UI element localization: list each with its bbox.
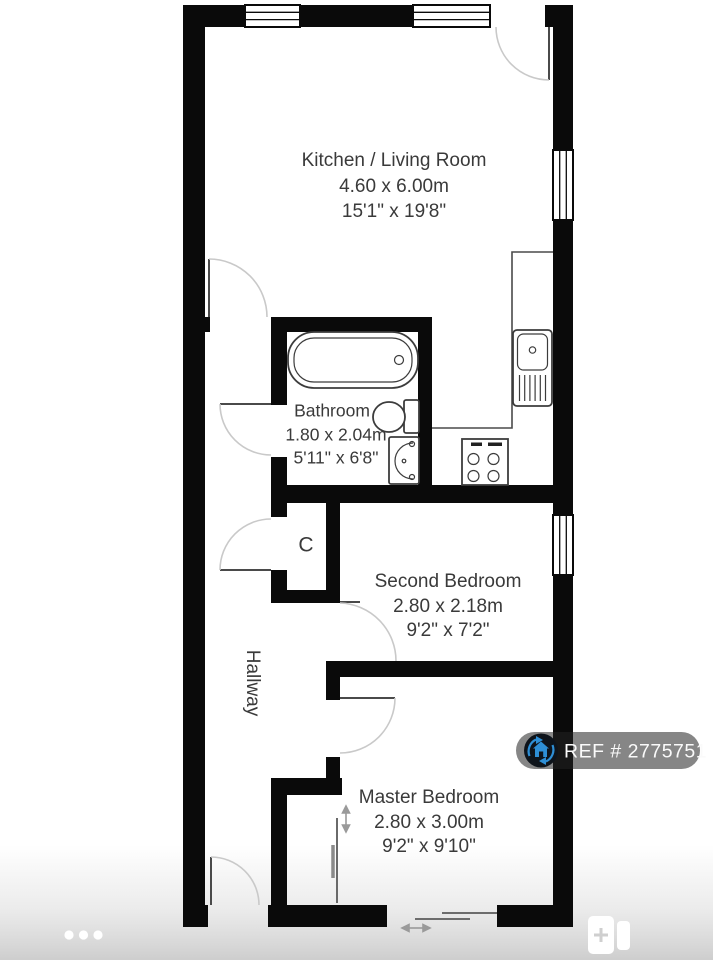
carousel-dot[interactable] bbox=[64, 930, 73, 939]
room-dims-metric: 2.80 x 2.18m bbox=[393, 596, 503, 617]
ref-badge: REF # 2775751 bbox=[516, 732, 707, 769]
label-hallway: Hallway bbox=[242, 650, 263, 717]
room-dims-metric: 1.80 x 2.04m bbox=[285, 425, 386, 445]
kitchen-sink bbox=[513, 330, 552, 406]
wash-basin bbox=[389, 437, 419, 484]
room-dims-imperial: 9'2" x 9'10" bbox=[382, 836, 476, 857]
house-circular-arrows-icon bbox=[524, 734, 558, 768]
room-dims-metric: 4.60 x 6.00m bbox=[339, 176, 449, 197]
carousel-dot[interactable] bbox=[79, 930, 88, 939]
room-dims-imperial: 5'11" x 6'8" bbox=[294, 448, 379, 468]
floorplan-svg: Kitchen / Living Room 4.60 x 6.00m 15'1"… bbox=[0, 0, 713, 960]
room-dims-imperial: 9'2" x 7'2" bbox=[406, 620, 489, 641]
page-thumb bbox=[617, 921, 630, 950]
room-name: Second Bedroom bbox=[375, 571, 522, 592]
room-name: Master Bedroom bbox=[359, 787, 499, 808]
room-name: Bathroom bbox=[294, 401, 370, 421]
carousel-dot[interactable] bbox=[93, 930, 102, 939]
room-dims-metric: 2.80 x 3.00m bbox=[374, 812, 484, 833]
ref-number-text: REF # 2775751 bbox=[564, 741, 707, 763]
room-name: Kitchen / Living Room bbox=[302, 150, 487, 171]
carousel-dots[interactable] bbox=[64, 930, 102, 939]
window-kitchen-top-left bbox=[245, 5, 300, 27]
bathtub bbox=[288, 332, 418, 388]
kitchen-hob bbox=[462, 439, 508, 485]
page-background bbox=[0, 0, 713, 960]
screenshot-root: Kitchen / Living Room 4.60 x 6.00m 15'1"… bbox=[0, 0, 713, 960]
window-kitchen-right-wall bbox=[553, 150, 573, 220]
label-closet: C bbox=[298, 534, 313, 557]
window-kitchen-top-right bbox=[413, 5, 490, 27]
floorplan-pages-icon[interactable] bbox=[588, 916, 630, 954]
room-dims-imperial: 15'1" x 19'8" bbox=[342, 201, 446, 222]
window-second-bedroom bbox=[553, 515, 573, 575]
